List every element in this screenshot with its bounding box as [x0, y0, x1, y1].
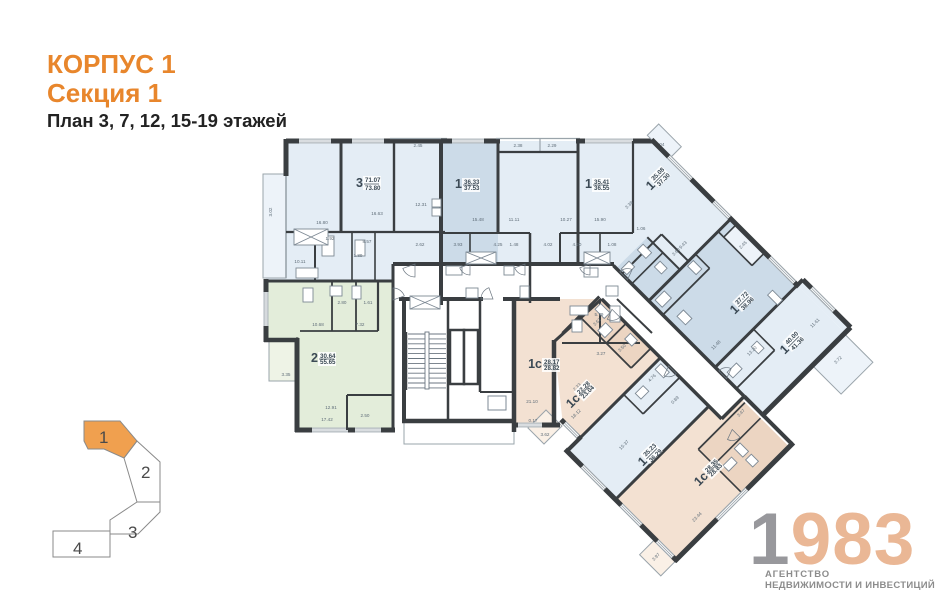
- svg-text:1с: 1с: [528, 357, 542, 371]
- svg-text:10.11: 10.11: [294, 259, 306, 264]
- svg-text:3: 3: [128, 523, 137, 542]
- svg-text:11.11: 11.11: [509, 217, 520, 222]
- svg-text:12.91: 12.91: [325, 405, 337, 410]
- svg-text:3.93: 3.93: [454, 242, 463, 247]
- svg-text:17.42: 17.42: [321, 417, 333, 422]
- svg-text:36.55: 36.55: [594, 185, 610, 192]
- svg-text:АГЕНТСТВО: АГЕНТСТВО: [765, 569, 830, 580]
- svg-text:1.61: 1.61: [364, 300, 373, 305]
- svg-text:55.65: 55.65: [320, 359, 336, 366]
- svg-text:2.50: 2.50: [361, 413, 370, 418]
- svg-text:16.80: 16.80: [316, 220, 328, 225]
- svg-text:4: 4: [73, 539, 82, 558]
- svg-text:71.07: 71.07: [365, 177, 381, 184]
- svg-text:3.35: 3.35: [282, 372, 291, 377]
- svg-text:1: 1: [455, 177, 462, 191]
- svg-text:10.27: 10.27: [560, 217, 572, 222]
- svg-text:3.62: 3.62: [541, 432, 550, 437]
- svg-text:37.53: 37.53: [464, 185, 480, 192]
- svg-text:10.68: 10.68: [312, 322, 324, 327]
- svg-text:3.27: 3.27: [597, 351, 606, 356]
- svg-text:Секция 1: Секция 1: [47, 78, 162, 108]
- svg-text:1: 1: [585, 177, 592, 191]
- svg-text:4.20: 4.20: [573, 242, 582, 247]
- svg-text:4.25: 4.25: [494, 242, 503, 247]
- svg-text:1.06: 1.06: [637, 226, 646, 231]
- svg-text:1.92: 1.92: [326, 236, 335, 241]
- svg-text:1983: 1983: [749, 499, 915, 580]
- svg-text:1.08: 1.08: [608, 242, 617, 247]
- svg-text:3.02: 3.02: [268, 207, 273, 216]
- svg-text:12.31: 12.31: [415, 202, 427, 207]
- svg-text:КОРПУС 1: КОРПУС 1: [47, 49, 176, 79]
- svg-text:1.48: 1.48: [510, 242, 519, 247]
- svg-text:5.79: 5.79: [595, 312, 604, 317]
- svg-text:8.57: 8.57: [363, 239, 372, 244]
- svg-text:2.38: 2.38: [514, 143, 523, 148]
- svg-text:2.80: 2.80: [338, 300, 347, 305]
- svg-text:73.80: 73.80: [365, 185, 381, 192]
- svg-text:0.17: 0.17: [529, 418, 538, 423]
- svg-text:План 3, 7, 12, 15-19 этажей: План 3, 7, 12, 15-19 этажей: [47, 110, 287, 131]
- svg-text:2: 2: [311, 351, 318, 365]
- svg-text:1: 1: [99, 428, 108, 447]
- svg-text:2.29: 2.29: [548, 143, 557, 148]
- svg-text:21.10: 21.10: [526, 399, 538, 404]
- svg-text:1.89: 1.89: [354, 253, 363, 258]
- svg-text:2: 2: [141, 463, 150, 482]
- svg-text:7.32: 7.32: [356, 322, 365, 327]
- svg-text:28.82: 28.82: [544, 365, 560, 372]
- svg-text:15.48: 15.48: [472, 217, 484, 222]
- svg-text:2.62: 2.62: [416, 242, 425, 247]
- svg-text:2.45: 2.45: [414, 143, 423, 148]
- svg-text:16.63: 16.63: [371, 211, 383, 216]
- svg-text:4.02: 4.02: [544, 242, 553, 247]
- svg-text:15.90: 15.90: [594, 217, 606, 222]
- svg-text:НЕДВИЖИМОСТИ И ИНВЕСТИЦИЙ: НЕДВИЖИМОСТИ И ИНВЕСТИЦИЙ: [765, 579, 935, 591]
- svg-text:3: 3: [356, 176, 363, 190]
